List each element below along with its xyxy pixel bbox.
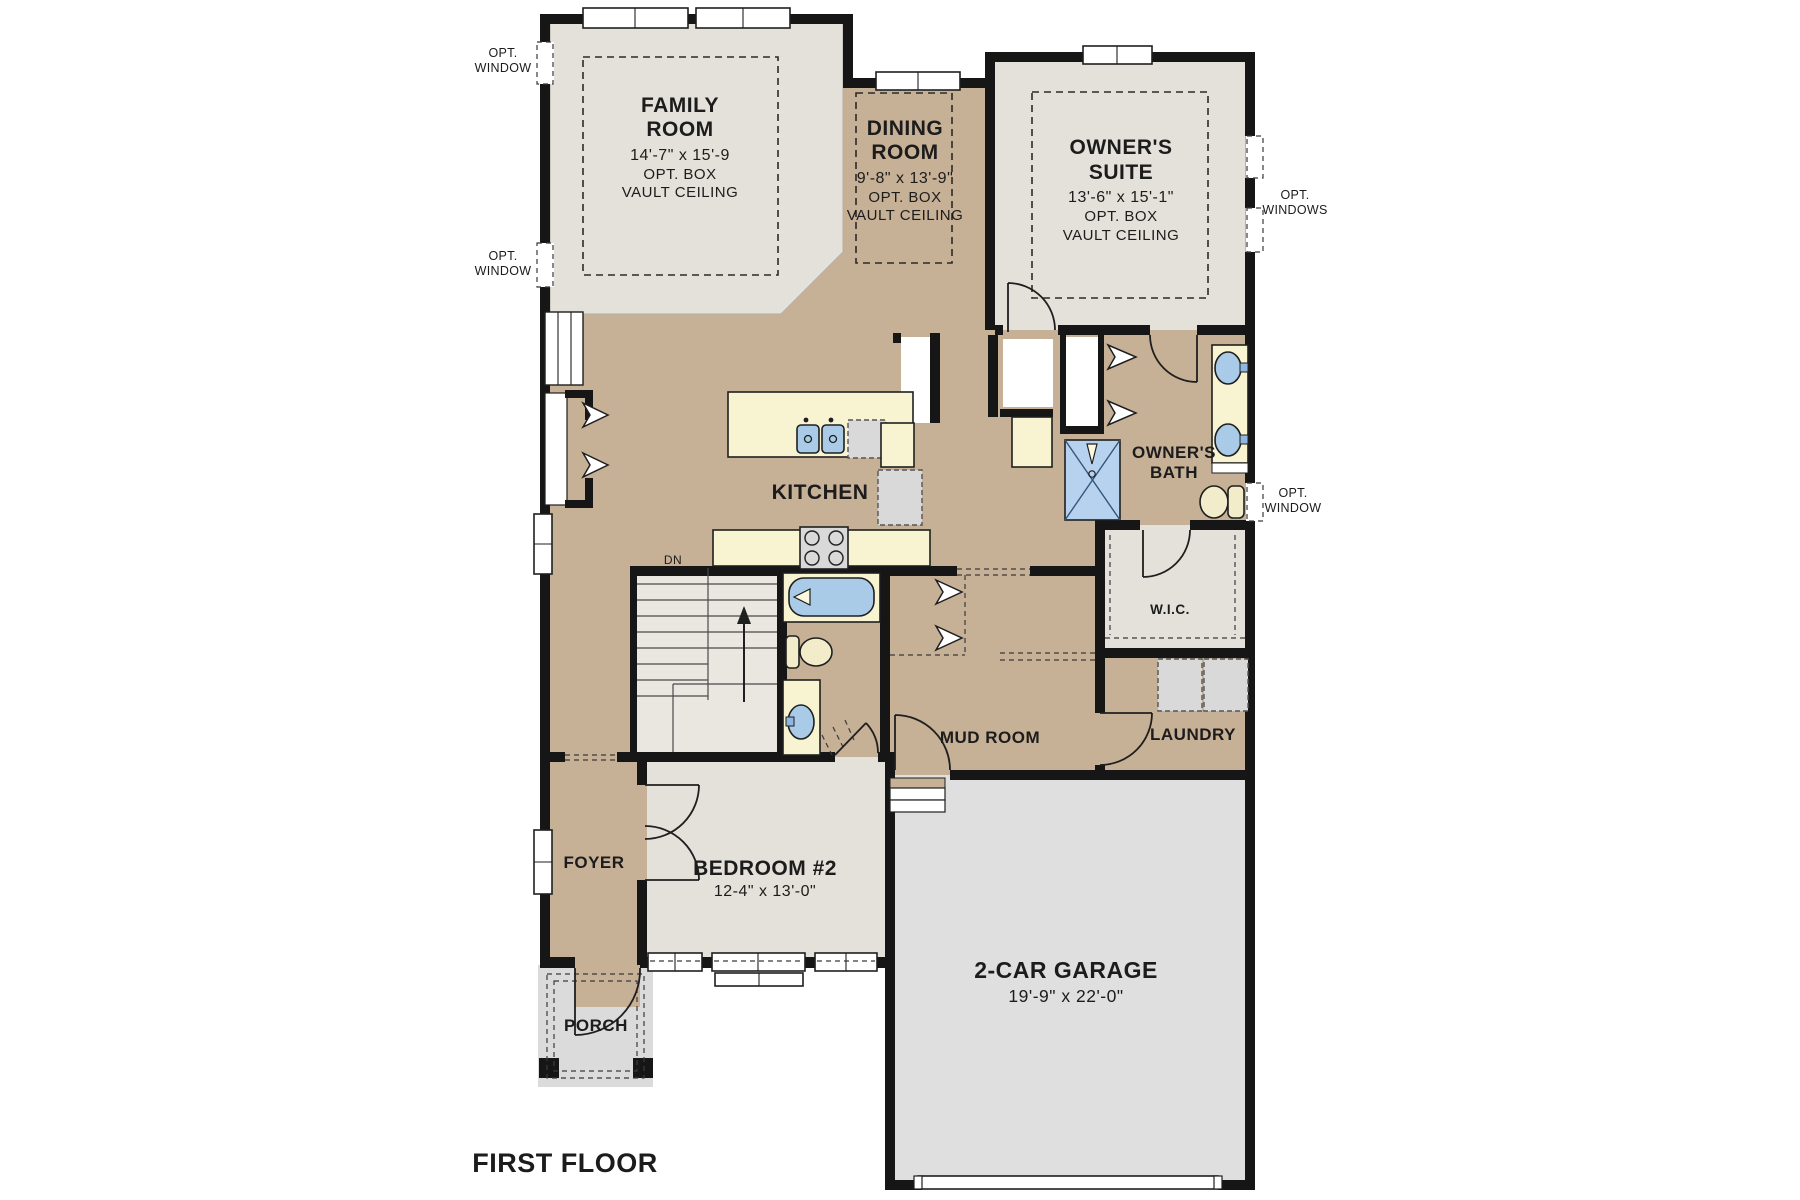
family-room-dims: 14'-7" x 15'-9 xyxy=(630,147,730,164)
garage-door-cap-left xyxy=(914,1176,922,1189)
hall-linen-cabinet xyxy=(1012,417,1052,467)
opt-window-gap-lower-left xyxy=(536,243,554,287)
opt-window-lower-left-1: OPT. xyxy=(489,249,518,263)
pantry-cabinet xyxy=(545,312,583,385)
dryer xyxy=(1204,659,1248,711)
bedroom2-dims: 12-4" x 13'-0" xyxy=(714,883,816,900)
porch-label: PORCH xyxy=(564,1016,628,1035)
owner-hall-closet-niche xyxy=(1003,339,1053,407)
garage-step-landing xyxy=(890,778,945,788)
kitchen-sink-basin-right xyxy=(822,425,844,453)
opt-window-bath-2: WINDOW xyxy=(1265,501,1322,515)
opt-window-gap-upper-left xyxy=(536,42,554,84)
owners-toilet-bowl xyxy=(1200,486,1228,518)
garage-label: 2-CAR GARAGE xyxy=(974,957,1158,983)
owners-bath-label-1: OWNER'S xyxy=(1132,443,1216,462)
garage-door xyxy=(918,1176,1218,1189)
family-room-label-1: FAMILY xyxy=(641,94,719,117)
opt-windows-gap-right-1 xyxy=(1246,136,1264,178)
dining-room-note-1: OPT. BOX xyxy=(868,189,941,206)
stair-dn-label: DN xyxy=(664,553,682,567)
owners-suite-label-1: OWNER'S xyxy=(1070,136,1173,159)
washer xyxy=(1158,659,1202,711)
family-room-note-2: VAULT CEILING xyxy=(622,184,739,201)
opt-window-upper-left-2: WINDOW xyxy=(475,61,532,75)
vanity-return xyxy=(1212,463,1248,473)
floor-plan-drawing: FAMILY ROOM 14'-7" x 15'-9 OPT. BOX VAUL… xyxy=(0,0,1800,1200)
opt-window-gap-bath xyxy=(1246,483,1264,521)
opt-windows-right-2: WINDOWS xyxy=(1262,203,1327,217)
owners-sink-2 xyxy=(1215,424,1241,456)
garage-door-cap-right xyxy=(1214,1176,1222,1189)
mud-room-label: MUD ROOM xyxy=(940,728,1040,747)
sink-faucet-left xyxy=(804,418,809,423)
bath2-faucet xyxy=(786,717,794,726)
foyer-label: FOYER xyxy=(563,853,624,872)
owners-suite-note-2: VAULT CEILING xyxy=(1063,227,1180,244)
bath2-toilet-tank xyxy=(786,636,799,668)
floor-plan-page: FAMILY ROOM 14'-7" x 15'-9 OPT. BOX VAUL… xyxy=(0,0,1800,1200)
bath2-toilet-bowl xyxy=(800,638,832,666)
garage-step-2 xyxy=(890,800,945,812)
hall-closet-recess xyxy=(545,393,567,505)
owners-suite-note-1: OPT. BOX xyxy=(1084,208,1157,225)
opt-window-upper-left-1: OPT. xyxy=(489,46,518,60)
owners-sink-1 xyxy=(1215,352,1241,384)
family-room-note-1: OPT. BOX xyxy=(643,166,716,183)
laundry-label: LAUNDRY xyxy=(1150,725,1236,744)
owners-suite-dims: 13'-6" x 15'-1" xyxy=(1068,189,1174,206)
garage-dims: 19'-9" x 22'-0" xyxy=(1008,986,1123,1006)
family-room-label-2: ROOM xyxy=(646,118,713,141)
dining-room-label-2: ROOM xyxy=(871,141,938,164)
dining-room-note-2: VAULT CEILING xyxy=(847,207,964,224)
wic-label: W.I.C. xyxy=(1150,602,1190,617)
bedroom2-label: BEDROOM #2 xyxy=(693,857,837,880)
owners-faucet-2 xyxy=(1240,435,1248,444)
pantry-counter xyxy=(881,423,914,467)
dining-room-dims: 9'-8" x 13'-9" xyxy=(857,170,954,187)
opt-windows-right-1: OPT. xyxy=(1281,188,1310,202)
sink-faucet-right xyxy=(829,418,834,423)
bath-chase-niche xyxy=(1066,337,1098,429)
garage-step-1 xyxy=(890,788,945,800)
kitchen-sink-basin-left xyxy=(797,425,819,453)
owners-suite-label-2: SUITE xyxy=(1089,161,1153,184)
opt-window-lower-left-2: WINDOW xyxy=(475,264,532,278)
opt-window-bath-1: OPT. xyxy=(1279,486,1308,500)
wic-floor xyxy=(1100,525,1245,653)
page-title: FIRST FLOOR xyxy=(472,1148,657,1178)
front-door-threshold xyxy=(575,965,640,1007)
dining-room-label-1: DINING xyxy=(867,117,944,140)
refrigerator xyxy=(878,470,922,525)
stairs-floor xyxy=(637,568,777,758)
owners-faucet-1 xyxy=(1240,363,1248,372)
owners-toilet-tank xyxy=(1228,486,1244,518)
kitchen-label: KITCHEN xyxy=(772,481,869,504)
opt-windows-gap-right-2 xyxy=(1246,208,1264,252)
owners-bath-label-2: BATH xyxy=(1150,463,1198,482)
